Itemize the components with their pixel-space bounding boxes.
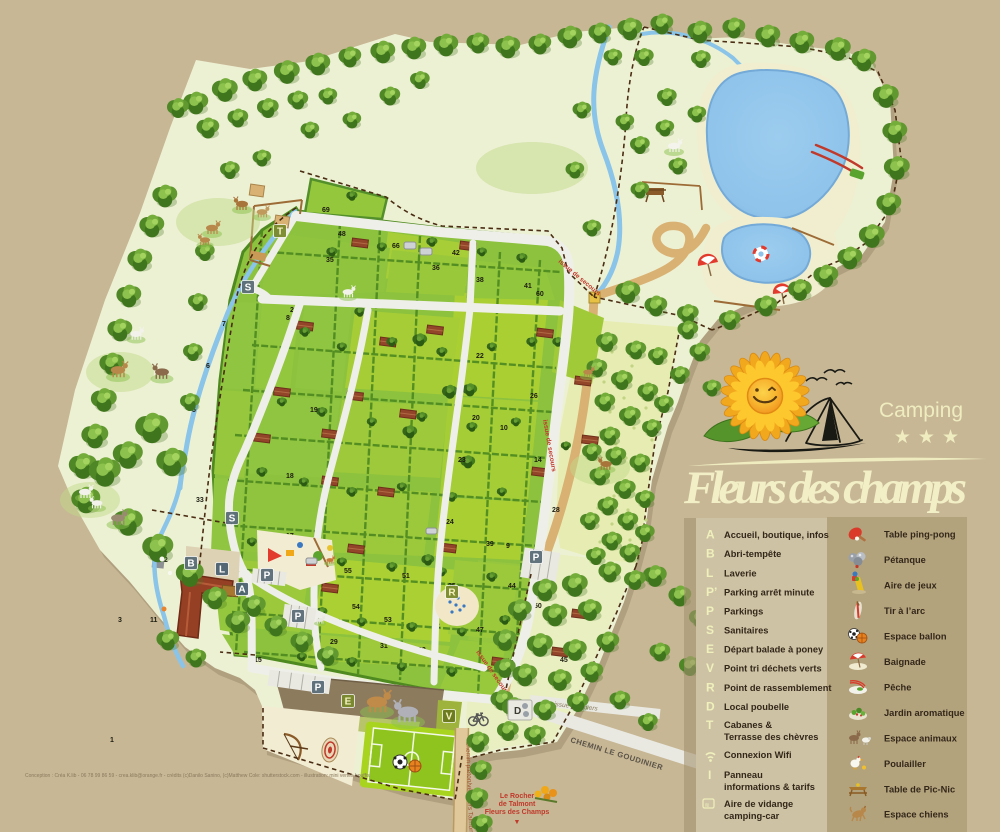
svg-text:L: L [706,566,713,580]
svg-text:Espace chiens: Espace chiens [884,810,949,820]
svg-text:B: B [706,547,715,561]
svg-text:P: P [264,571,271,582]
svg-text:14: 14 [534,457,542,464]
svg-text:Abri-tempête: Abri-tempête [724,549,781,559]
svg-text:L: L [219,565,225,576]
svg-text:P’: P’ [706,585,717,599]
svg-text:6: 6 [206,363,210,370]
svg-text:60: 60 [536,291,544,298]
svg-text:51: 51 [402,573,410,580]
svg-text:P: P [706,604,714,618]
svg-text:A: A [706,528,715,542]
svg-text:Laverie: Laverie [724,569,757,579]
svg-text:Espace animaux: Espace animaux [884,734,958,744]
svg-text:B: B [187,559,194,570]
svg-text:Sanitaires: Sanitaires [724,626,768,636]
svg-text:Pêche: Pêche [884,683,911,693]
svg-text:Aire de jeux: Aire de jeux [884,581,938,591]
svg-text:D: D [706,700,715,714]
svg-text:Conception : Créa K.lib - 06 7: Conception : Créa K.lib - 06 78 99 86 59… [25,773,370,779]
svg-text:≋: ≋ [705,803,710,809]
svg-text:P: P [315,683,322,694]
svg-text:8: 8 [286,315,290,322]
svg-text:Départ balade à poney: Départ balade à poney [724,645,824,655]
svg-text:9: 9 [506,543,510,550]
svg-text:Point de rassemblement: Point de rassemblement [724,683,831,693]
svg-text:Espace ballon: Espace ballon [884,632,947,642]
svg-text:66: 66 [392,243,400,250]
svg-text:22: 22 [476,353,484,360]
svg-text:Fleurs des champs: Fleurs des champs [683,462,967,514]
svg-text:D: D [514,706,521,717]
svg-text:Terrasse des chèvres: Terrasse des chèvres [724,732,818,742]
svg-text:Local poubelle: Local poubelle [724,702,789,712]
svg-text:I: I [708,768,711,782]
svg-text:Poulailler: Poulailler [884,759,926,769]
svg-text:Cabanes &: Cabanes & [724,720,772,730]
svg-text:55: 55 [344,568,352,575]
svg-text:26: 26 [530,393,538,400]
svg-text:33: 33 [196,497,204,504]
svg-text:36: 36 [432,265,440,272]
svg-text:20: 20 [472,415,480,422]
svg-text:T: T [706,718,714,732]
svg-text:Pétanque: Pétanque [884,555,926,565]
svg-text:Tir à l’arc: Tir à l’arc [884,606,925,616]
svg-text:Le Rocher: Le Rocher [500,793,535,800]
svg-text:23: 23 [458,457,466,464]
svg-text:E: E [345,697,352,708]
svg-text:44: 44 [508,583,516,590]
svg-text:24: 24 [446,519,454,526]
svg-text:S: S [245,283,252,294]
svg-text:Camping: Camping [879,399,963,422]
svg-text:47: 47 [476,627,484,634]
svg-text:48: 48 [338,231,346,238]
svg-text:V: V [446,712,453,723]
svg-text:P: P [295,612,302,623]
svg-text:69: 69 [322,207,330,214]
svg-text:18: 18 [286,473,294,480]
svg-text:de Talmont: de Talmont [499,801,536,808]
svg-text:19: 19 [310,407,318,414]
svg-text:Jardin aromatique: Jardin aromatique [884,708,965,718]
svg-text:A: A [238,585,245,596]
svg-text:E: E [706,642,714,656]
svg-text:camping-car: camping-car [724,811,780,821]
svg-text:1: 1 [110,737,114,744]
svg-text:11: 11 [150,617,158,624]
svg-text:Parking arrêt minute: Parking arrêt minute [724,588,814,598]
svg-text:S: S [706,623,714,637]
svg-text:P: P [533,553,540,564]
svg-text:Aire de vidange: Aire de vidange [724,799,793,809]
svg-text:T: T [277,227,283,238]
svg-text:informations & tarifs: informations & tarifs [724,782,815,792]
svg-text:3: 3 [118,617,122,624]
svg-text:V: V [706,661,714,675]
svg-text:45: 45 [560,657,568,664]
svg-text:38: 38 [476,277,484,284]
svg-text:R: R [448,588,456,599]
svg-text:Table ping-pong: Table ping-pong [884,530,956,540]
svg-text:R: R [706,681,715,695]
svg-text:Table de Pic-Nic: Table de Pic-Nic [884,785,955,795]
svg-text:Fleurs des Champs: Fleurs des Champs [485,809,550,816]
svg-text:Point tri déchets verts: Point tri déchets verts [724,664,822,674]
svg-text:10: 10 [500,425,508,432]
svg-text:39: 39 [486,541,494,548]
svg-text:Panneau: Panneau [724,770,763,780]
svg-text:28: 28 [552,507,560,514]
svg-text:★★★: ★★★ [894,427,966,448]
svg-text:54: 54 [352,604,360,611]
svg-text:Accueil, boutique, infos: Accueil, boutique, infos [724,530,829,540]
svg-text:35: 35 [326,257,334,264]
svg-text:42: 42 [452,250,460,257]
svg-text:53: 53 [384,617,392,624]
svg-text:▼: ▼ [514,819,521,826]
svg-text:S: S [229,514,236,525]
svg-text:Baignade: Baignade [884,657,926,667]
svg-text:Parkings: Parkings [724,607,763,617]
svg-text:29: 29 [330,639,338,646]
svg-text:7: 7 [222,321,226,328]
svg-text:Connexion Wifi: Connexion Wifi [724,750,792,760]
svg-text:41: 41 [524,283,532,290]
